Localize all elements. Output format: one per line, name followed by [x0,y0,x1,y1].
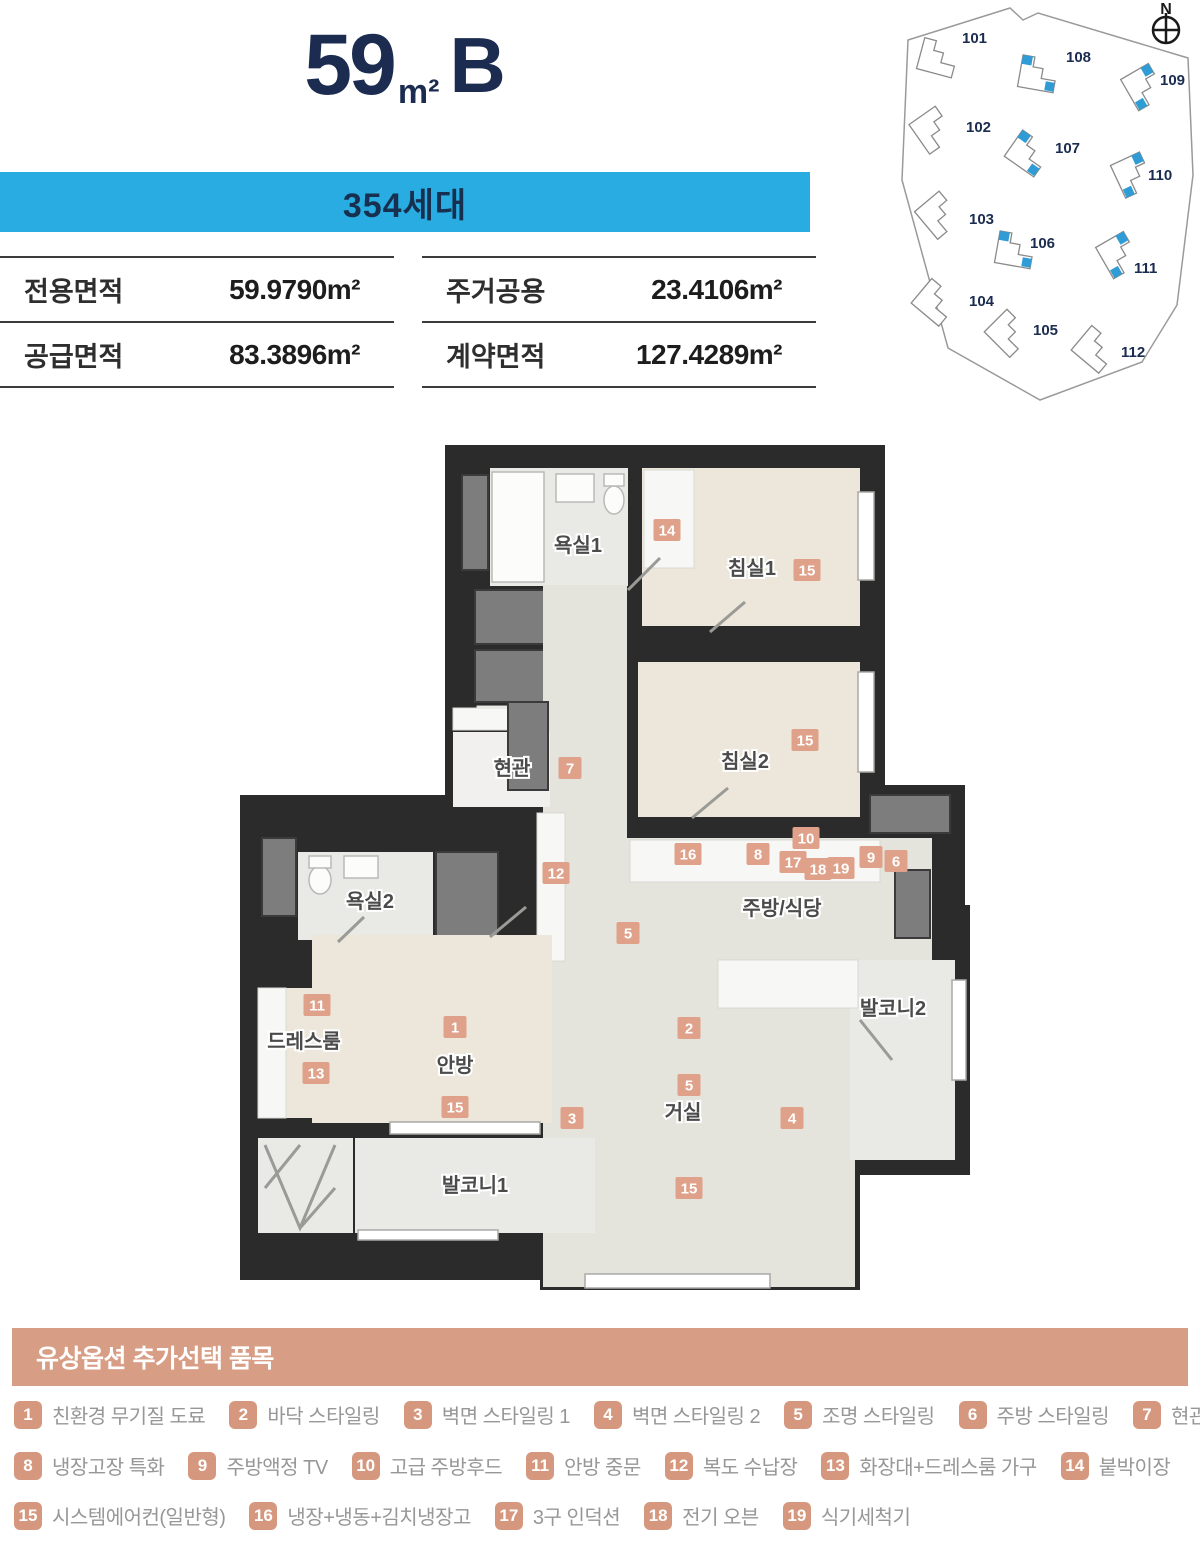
svg-text:19: 19 [833,861,850,878]
svg-text:3: 3 [568,1111,576,1128]
svg-text:12: 12 [548,866,565,883]
option-marker: 15 [794,559,821,581]
building-number: 103 [969,211,994,228]
options-row: 1친환경 무기질 도료2바닥 스타일링3벽면 스타일링 14벽면 스타일링 25… [14,1400,1194,1429]
option-number-badge: 6 [959,1401,987,1429]
option-number-badge: 4 [594,1401,622,1429]
option-marker: 15 [792,729,819,751]
area-label: 전용면적 [24,270,123,309]
option-item-10: 10고급 주방후드 [352,1451,502,1480]
option-marker: 6 [885,850,908,872]
svg-text:15: 15 [797,733,814,750]
svg-text:8: 8 [754,847,762,864]
room-label: 드레스룸 [267,1030,341,1053]
option-number-badge: 5 [784,1401,812,1429]
option-item-13: 13화장대+드레스룸 가구 [821,1451,1036,1480]
option-number-badge: 3 [404,1401,432,1429]
area-table: 전용면적 59.9790m² 공급면적 83.3896m² 주거공용 23.41… [0,256,816,388]
option-label: 벽면 스타일링 2 [632,1400,760,1429]
option-item-15: 15시스템에어컨(일반형) [14,1501,225,1530]
area-table-left-column: 전용면적 59.9790m² 공급면적 83.3896m² [0,256,394,388]
option-marker: 11 [304,994,331,1016]
area-value: 23.4106m² [651,274,782,306]
option-marker: 15 [442,1096,469,1118]
option-item-14: 14붙박이장 [1061,1451,1171,1480]
households-count: 354세대 [343,178,467,227]
option-number-badge: 10 [352,1452,380,1480]
options-title: 유상옵션 추가선택 품목 [36,1339,274,1375]
option-marker: 16 [675,843,702,865]
table-row: 주거공용 23.4106m² [422,258,816,321]
option-item-4: 4벽면 스타일링 2 [594,1400,760,1429]
room-label: 현관 [494,757,531,780]
svg-text:17: 17 [785,855,802,872]
area-label: 공급면적 [24,335,123,374]
option-label: 조명 스타일링 [822,1400,934,1429]
area-label: 계약면적 [446,335,545,374]
building-number: 102 [966,119,991,136]
option-marker: 10 [793,827,820,849]
area-value: 127.4289m² [636,339,782,371]
option-label: 친환경 무기질 도료 [52,1400,205,1429]
option-item-9: 9주방액정 TV [188,1451,327,1480]
svg-text:15: 15 [799,563,816,580]
option-item-2: 2바닥 스타일링 [229,1400,379,1429]
area-value: 83.3896m² [229,339,360,371]
svg-text:7: 7 [566,761,574,778]
option-label: 전기 오븐 [682,1501,759,1530]
option-marker: 3 [561,1107,584,1129]
option-item-6: 6주방 스타일링 [959,1400,1109,1429]
room-label: 발코니1 [442,1174,508,1197]
option-label: 식기세척기 [821,1501,911,1530]
option-item-11: 11안방 중문 [526,1451,641,1480]
option-marker: 12 [543,862,570,884]
option-marker: 15 [676,1177,703,1199]
area-table-right-column: 주거공용 23.4106m² 계약면적 127.4289m² [422,256,816,388]
svg-text:14: 14 [659,523,676,540]
option-number-badge: 14 [1061,1452,1089,1480]
svg-text:1: 1 [451,1020,459,1037]
room-label: 욕실2 [346,890,394,913]
room-label: 주방/식당 [742,897,822,920]
option-label: 냉장+냉동+김치냉장고 [287,1501,470,1530]
building-number: 112 [1121,344,1145,361]
option-label: 3구 인덕션 [533,1501,620,1530]
options-row: 8냉장고장 특화9주방액정 TV10고급 주방후드11안방 중문12복도 수납장… [14,1451,1194,1480]
building-number: 105 [1033,322,1058,339]
page: 59 m² B 354세대 전용면적 59.9790m² 공급면적 83.389… [0,0,1200,1552]
building-number: 110 [1148,167,1172,184]
option-item-12: 12복도 수납장 [665,1451,798,1480]
unit-area-number: 59 [304,16,394,115]
svg-text:15: 15 [681,1181,698,1198]
floor-plan: 욕실1침실1침실2현관욕실2주방/식당드레스룸안방발코니1거실발코니2 1415… [240,440,970,1290]
option-number-badge: 17 [495,1502,523,1530]
option-label: 복도 수납장 [703,1451,798,1480]
option-number-badge: 19 [783,1502,811,1530]
building-number: 108 [1066,49,1091,66]
building-number: 109 [1160,72,1185,89]
table-row: 계약면적 127.4289m² [422,321,816,386]
option-label: 바닥 스타일링 [267,1400,379,1429]
building-number: 107 [1055,140,1080,157]
compass-icon: N [1153,1,1179,43]
unit-area-unit: m² [398,73,440,112]
option-marker: 5 [678,1074,701,1096]
options-header-bar: 유상옵션 추가선택 품목 [12,1328,1188,1386]
table-row: 공급면적 83.3896m² [0,321,394,386]
room-label: 욕실1 [554,534,602,557]
table-row: 전용면적 59.9790m² [0,258,394,321]
option-number-badge: 18 [644,1502,672,1530]
option-number-badge: 9 [188,1452,216,1480]
option-number-badge: 13 [821,1452,849,1480]
room-label: 침실1 [728,557,776,580]
option-marker: 13 [303,1062,330,1084]
option-number-badge: 7 [1133,1401,1161,1429]
option-item-8: 8냉장고장 특화 [14,1451,164,1480]
option-item-7: 7현관중문 [1133,1400,1200,1429]
svg-text:18: 18 [810,862,827,879]
option-label: 붙박이장 [1099,1451,1171,1480]
option-label: 고급 주방후드 [390,1451,502,1480]
svg-text:16: 16 [680,847,697,864]
option-label: 벽면 스타일링 1 [442,1400,570,1429]
option-marker: 1 [444,1016,467,1038]
room-label: 안방 [437,1054,474,1077]
option-label: 화장대+드레스룸 가구 [859,1451,1036,1480]
option-number-badge: 11 [526,1452,554,1480]
option-item-5: 5조명 스타일링 [784,1400,934,1429]
option-marker: 5 [617,922,640,944]
building-number: 101 [962,30,987,47]
site-map: 101108109102107110103106111104105112 N [890,0,1200,405]
option-label: 안방 중문 [564,1451,641,1480]
room-label: 발코니2 [860,997,926,1020]
option-number-badge: 2 [229,1401,257,1429]
option-marker: 8 [747,843,770,865]
options-row: 15시스템에어컨(일반형)16냉장+냉동+김치냉장고173구 인덕션18전기 오… [14,1501,1194,1530]
option-label: 현관중문 [1171,1400,1200,1429]
svg-text:10: 10 [798,831,815,848]
svg-text:6: 6 [892,854,900,871]
option-marker: 9 [860,846,883,868]
area-label: 주거공용 [446,270,545,309]
unit-title: 59 m² B [0,0,810,130]
option-label: 시스템에어컨(일반형) [52,1501,225,1530]
option-item-18: 18전기 오븐 [644,1501,759,1530]
room-label: 거실 [665,1101,702,1124]
option-item-3: 3벽면 스타일링 1 [404,1400,570,1429]
households-banner: 354세대 [0,172,810,232]
area-value: 59.9790m² [229,274,360,306]
room-label: 침실2 [721,750,769,773]
option-marker: 19 [828,857,855,879]
svg-text:5: 5 [624,926,632,943]
svg-text:4: 4 [788,1111,797,1128]
option-marker: 17 [780,851,807,873]
option-label: 냉장고장 특화 [52,1451,164,1480]
svg-text:9: 9 [867,850,875,867]
svg-text:5: 5 [685,1078,693,1095]
option-label: 주방 스타일링 [997,1400,1109,1429]
option-label: 주방액정 TV [226,1451,327,1480]
building-number: 111 [1134,260,1157,277]
option-marker: 4 [781,1107,804,1129]
svg-text:15: 15 [447,1100,464,1117]
option-number-badge: 16 [249,1502,277,1530]
svg-text:2: 2 [685,1021,693,1038]
option-marker: 2 [678,1017,701,1039]
svg-text:11: 11 [309,998,325,1015]
building-number: 106 [1030,235,1055,252]
option-number-badge: 8 [14,1452,42,1480]
option-item-16: 16냉장+냉동+김치냉장고 [249,1501,470,1530]
option-number-badge: 12 [665,1452,693,1480]
unit-type-letter: B [449,20,505,111]
building-number: 104 [969,293,995,310]
option-marker: 7 [559,757,582,779]
option-item-19: 19식기세척기 [783,1501,911,1530]
option-number-badge: 15 [14,1502,42,1530]
option-marker: 18 [805,858,832,880]
option-item-17: 173구 인덕션 [495,1501,620,1530]
option-number-badge: 1 [14,1401,42,1429]
option-marker: 14 [654,519,681,541]
option-item-1: 1친환경 무기질 도료 [14,1400,205,1429]
svg-text:13: 13 [308,1066,325,1083]
